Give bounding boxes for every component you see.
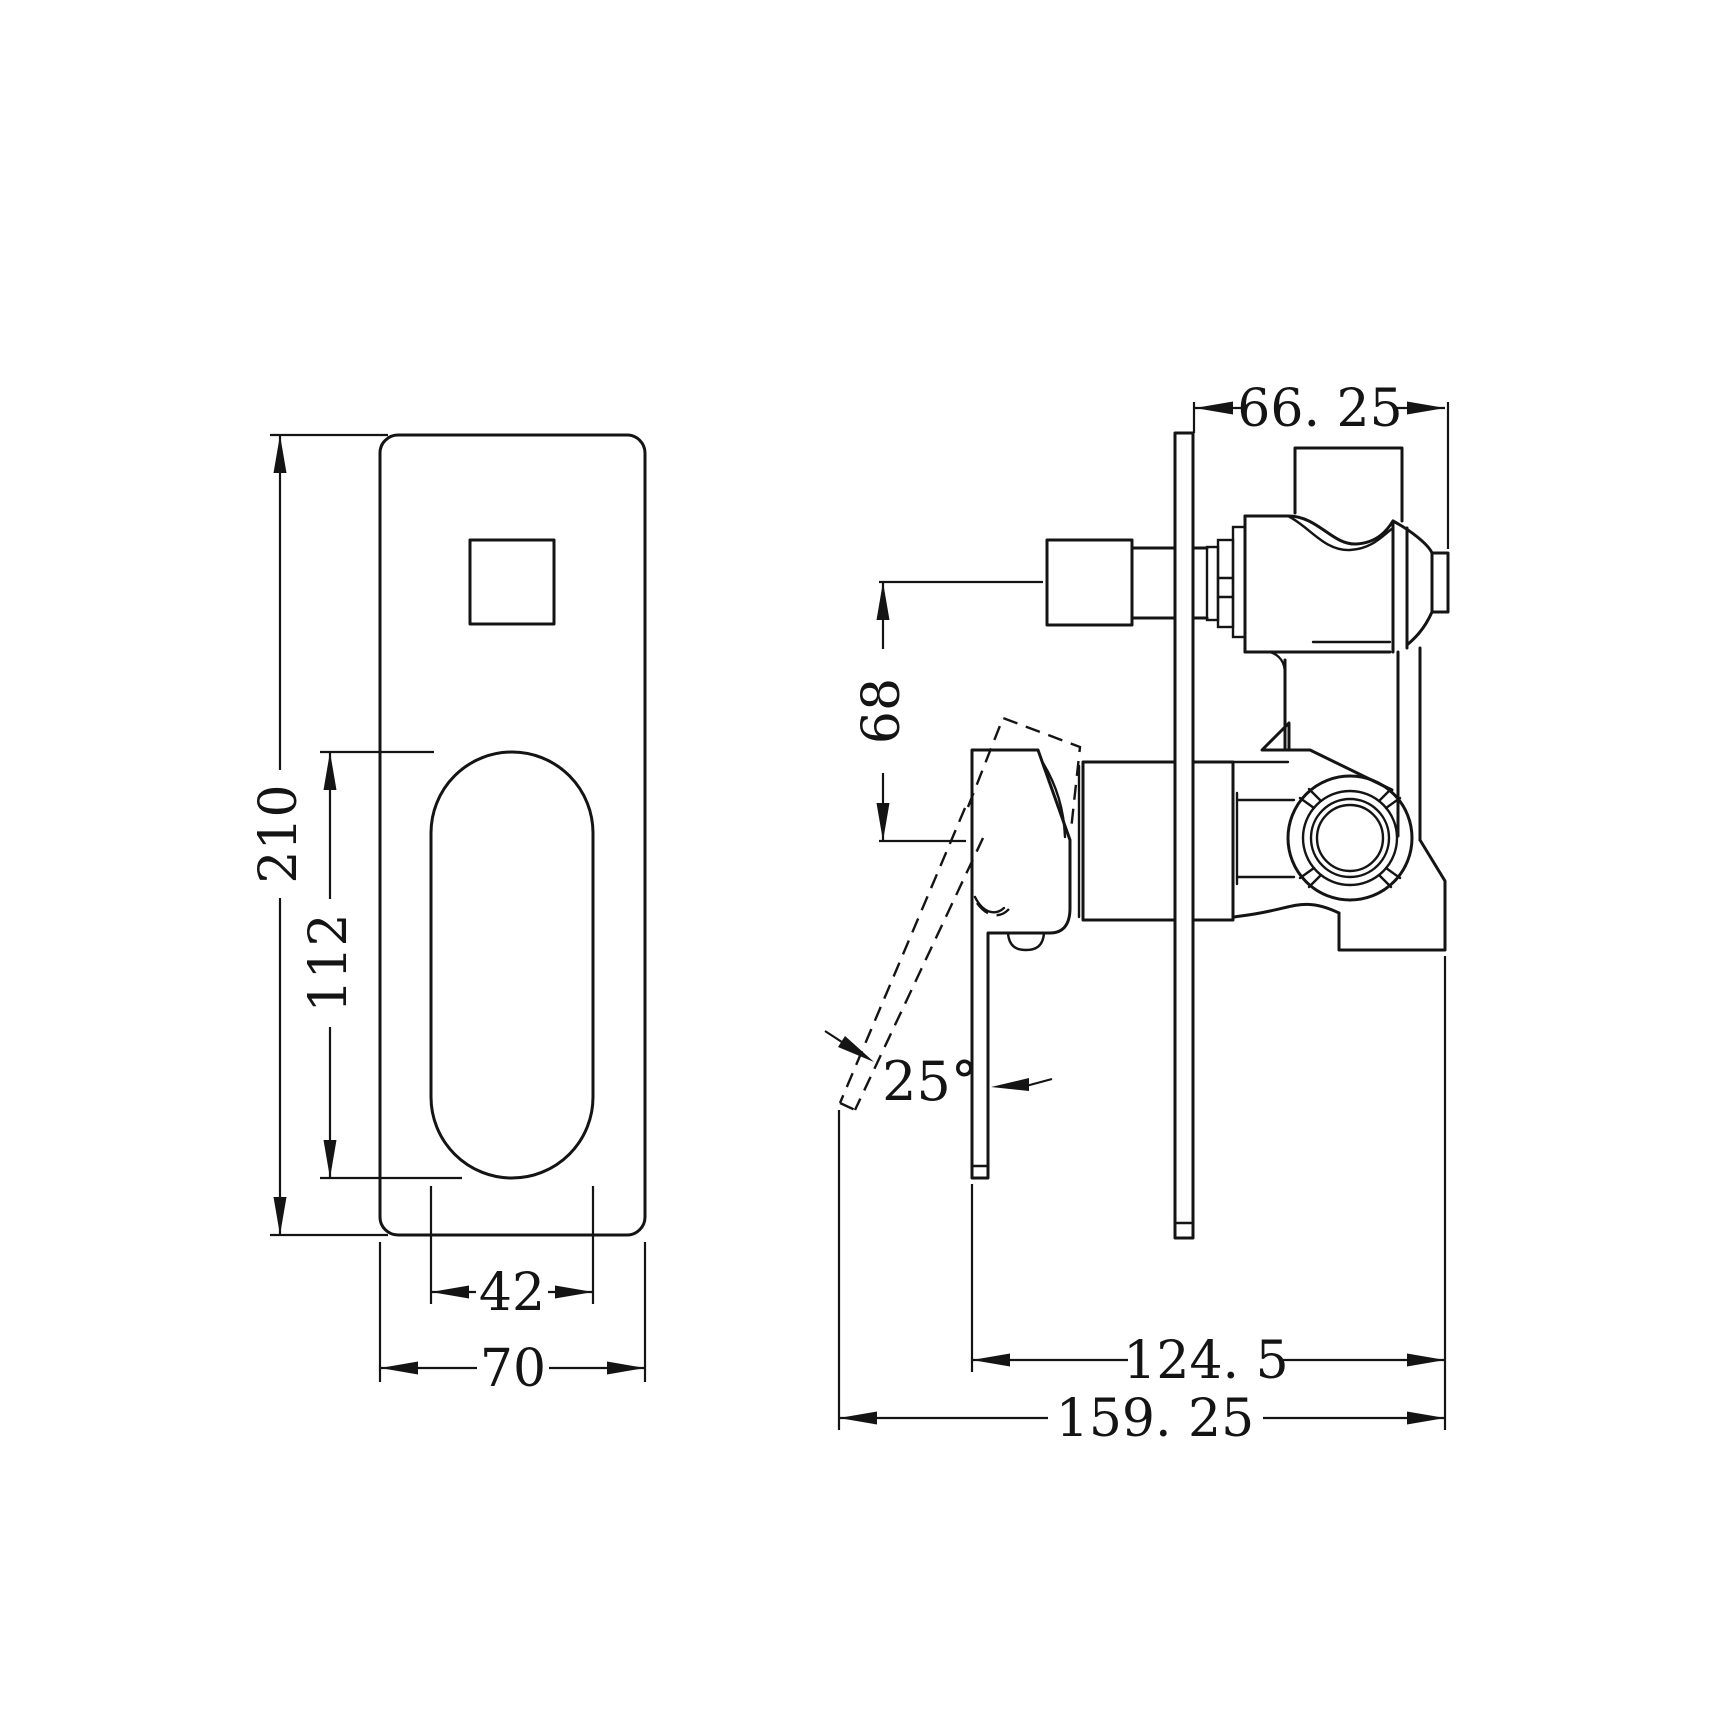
outlet-end-block	[1047, 540, 1132, 625]
dim-label-plate-height: 210	[249, 784, 309, 883]
back-outlet-port	[1432, 553, 1448, 612]
dim-overall-depth: 159. 25	[839, 1110, 1445, 1449]
trim-plate-outline	[380, 435, 645, 1235]
side-view: 66. 25 68 25° 124. 5	[825, 379, 1448, 1449]
technical-drawing-page: 210 112 42 70	[0, 0, 1733, 1733]
dim-label-outlet-depth: 66. 25	[1237, 379, 1402, 439]
upper-valve-body	[1245, 516, 1448, 652]
outlet-washer	[1207, 547, 1218, 620]
dim-outlet-depth: 66. 25	[1194, 379, 1448, 549]
dim-lever-depth: 124. 5	[972, 956, 1445, 1430]
outlet-rod	[1132, 548, 1207, 618]
front-view: 210 112 42 70	[249, 435, 645, 1399]
wall-plate	[1175, 433, 1193, 1238]
dim-label-overall-depth: 159. 25	[1056, 1389, 1254, 1449]
riser-pipe	[1295, 448, 1402, 521]
dim-label-plate-width: 70	[480, 1339, 546, 1399]
dim-label-slot-height: 112	[299, 913, 359, 1012]
outlet-collar	[1233, 527, 1245, 637]
dim-label-lever-depth: 124. 5	[1123, 1331, 1288, 1391]
dim-label-lever-angle: 25°	[882, 1050, 978, 1113]
handle-lever	[972, 750, 1070, 1178]
dim-label-outlet-to-axis: 68	[852, 678, 912, 744]
dim-label-slot-width: 42	[479, 1263, 545, 1323]
outlet-hex-nut	[1218, 540, 1233, 627]
top-outlet-assembly	[1047, 448, 1448, 652]
bottom-outlet-flange	[1288, 776, 1412, 900]
handle-set-screw	[1008, 933, 1044, 950]
mixer-dimension-drawing: 210 112 42 70	[0, 0, 1733, 1733]
dim-plate-height: 210	[249, 435, 388, 1235]
